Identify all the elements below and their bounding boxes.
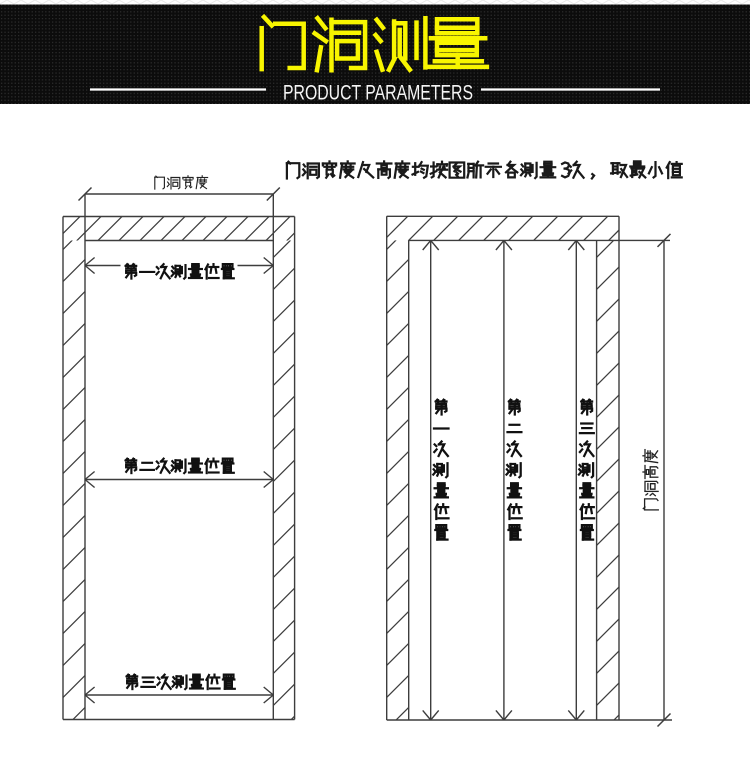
- svg-text:PRODUCT PARAMETERS: PRODUCT PARAMETERS: [283, 81, 473, 105]
